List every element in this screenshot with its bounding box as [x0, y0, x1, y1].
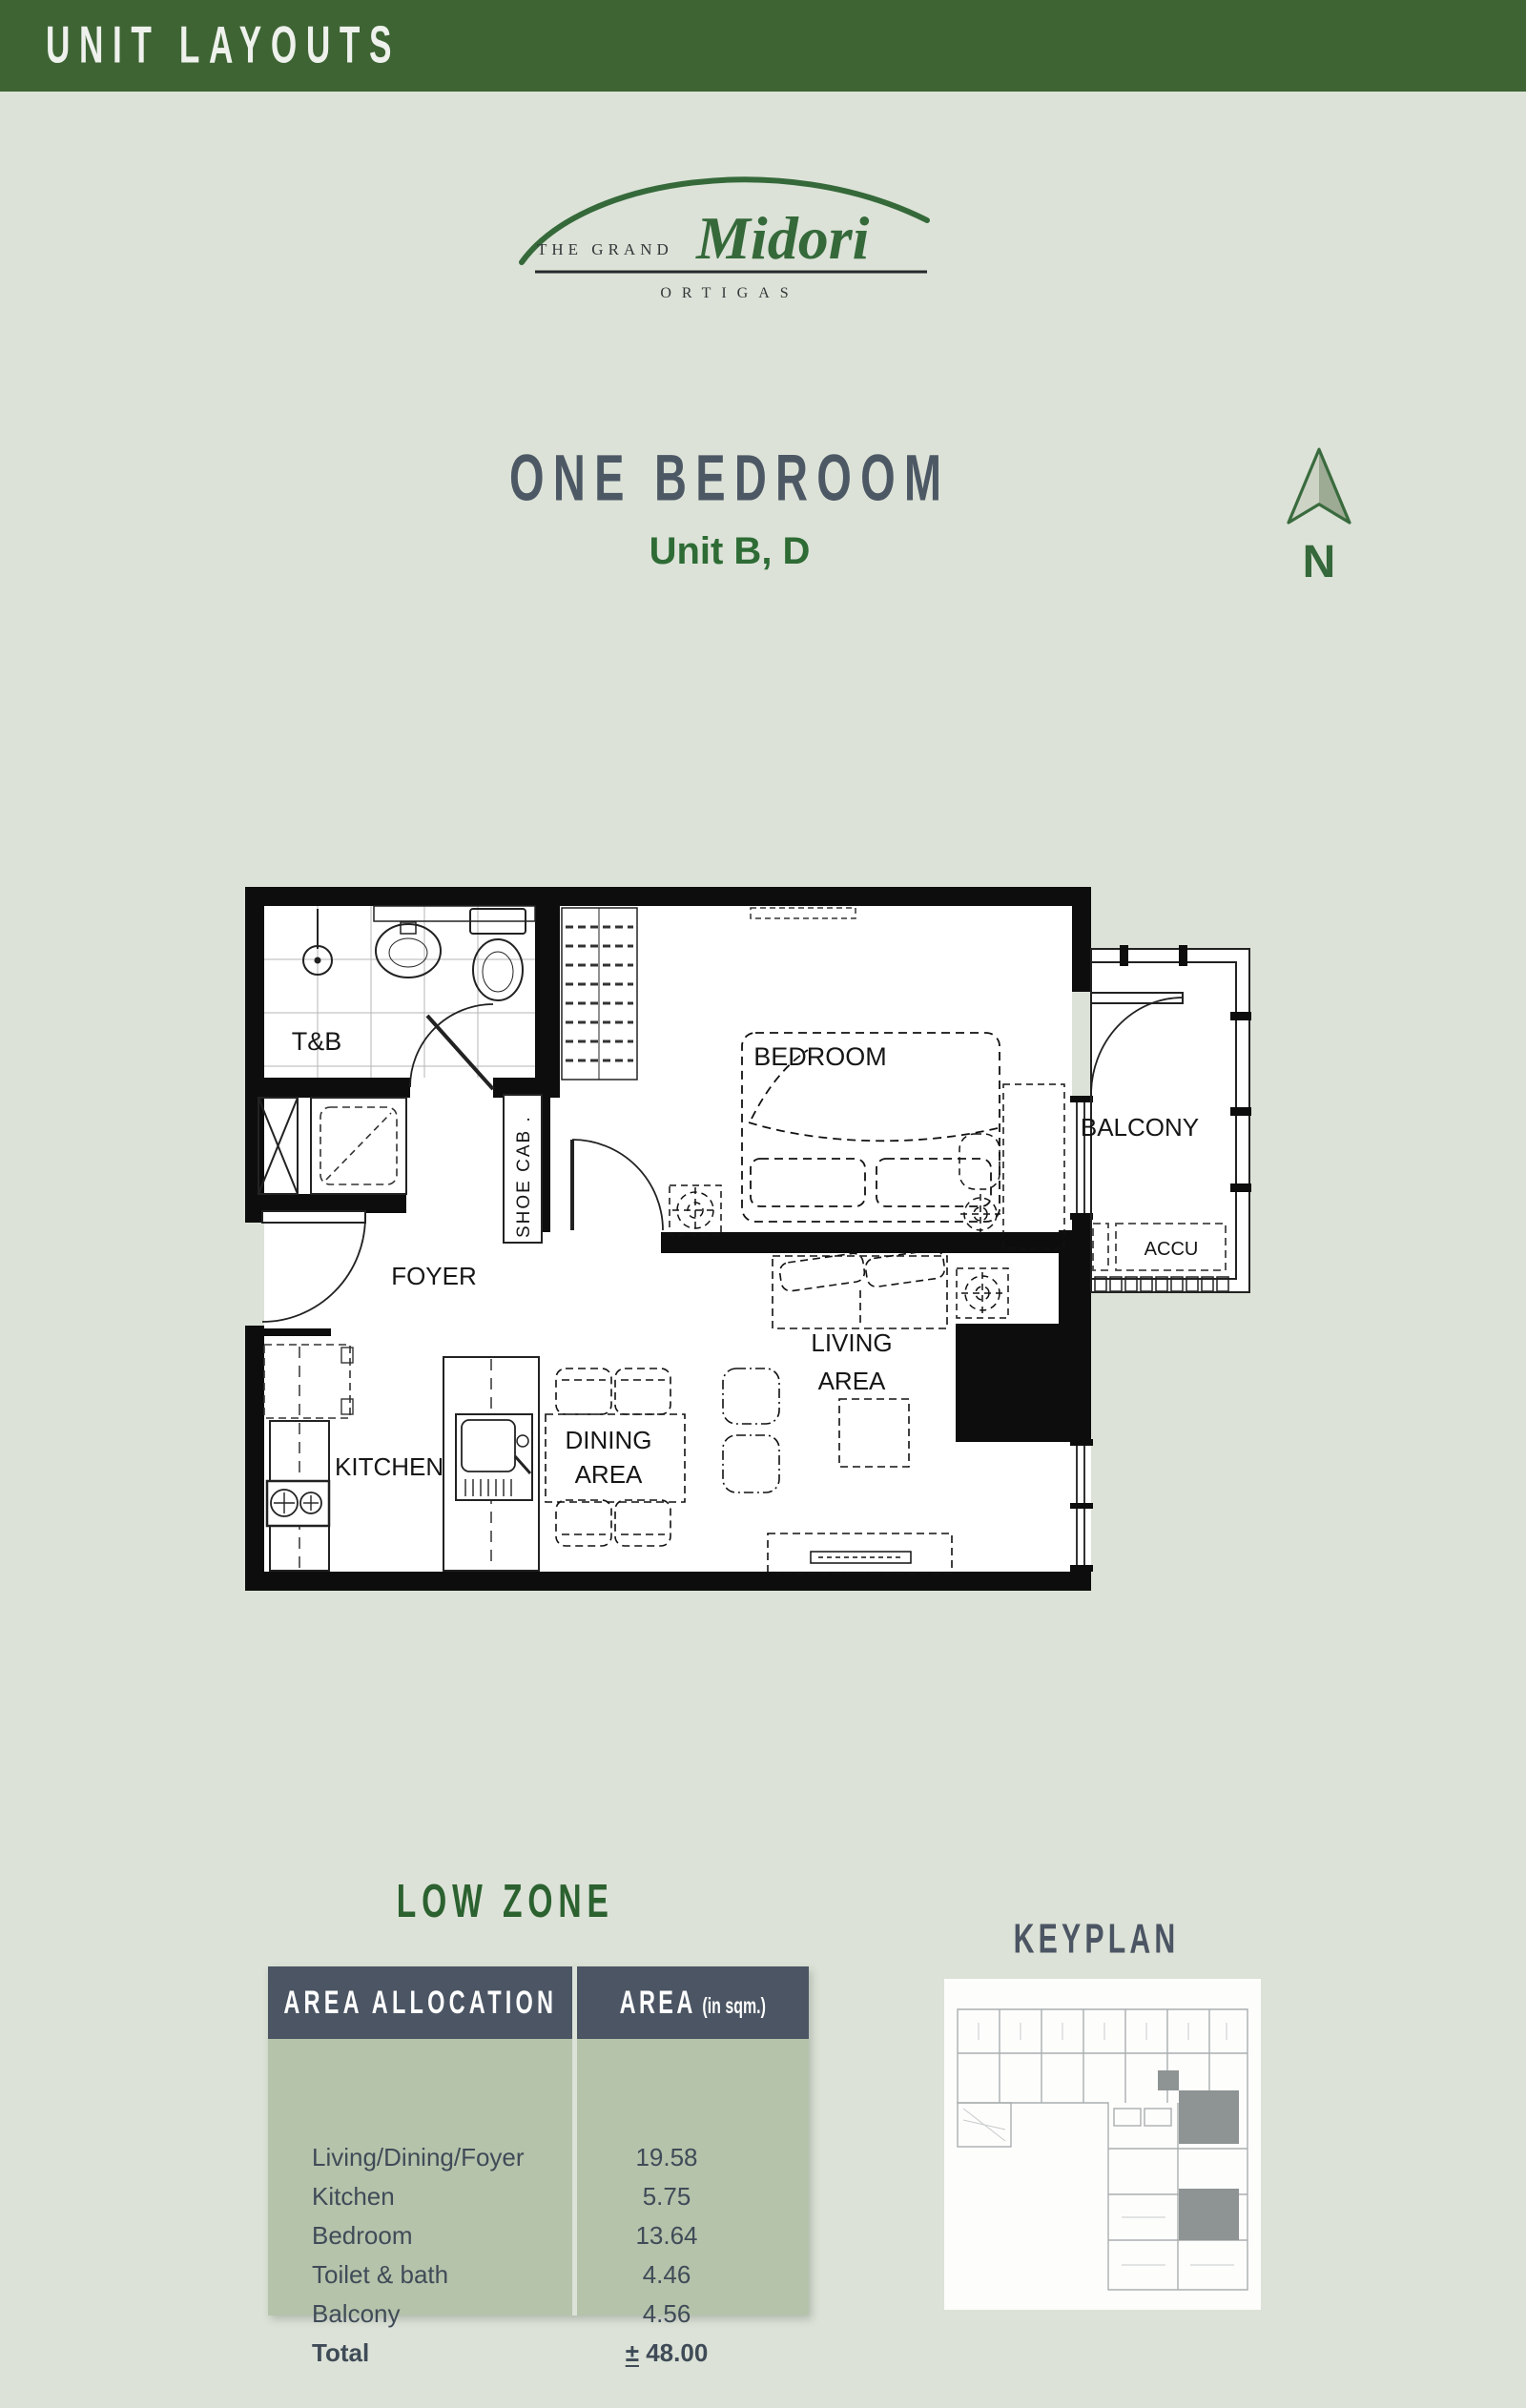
table-row-total: Total ± 48.00 — [268, 2334, 809, 2373]
label-accu: ACCU — [1144, 1239, 1199, 1260]
page-title: UNIT LAYOUTS — [46, 22, 489, 70]
label-foyer: FOYER — [391, 1262, 477, 1290]
page-header: UNIT LAYOUTS — [0, 0, 1526, 92]
table-row: Toilet & bath 4.46 — [268, 2255, 809, 2295]
logo-ortigas: ORTIGAS — [660, 285, 798, 301]
label-balcony: BALCONY — [1081, 1113, 1199, 1142]
floor-plan: T&B SHOE CAB . BEDROOM BALCONY ACCU FOYE… — [229, 873, 1268, 1607]
unit-type-title: ONE BEDROOM — [0, 446, 1459, 508]
label-living-1: LIVING — [811, 1328, 892, 1357]
north-arrow-icon — [1281, 439, 1357, 538]
label-dining-2: AREA — [575, 1460, 643, 1489]
table-row: Living/Dining/Foyer 19.58 — [268, 2138, 809, 2177]
keyplan-title: KEYPLAN — [968, 1919, 1226, 1959]
table-row: Bedroom 13.64 — [268, 2216, 809, 2255]
unit-layout-page: UNIT LAYOUTS THE GRAND Midori ORTIGAS ON… — [0, 0, 1526, 2408]
table-header-allocation: AREA ALLOCATION — [268, 1966, 572, 2039]
area-allocation-table: AREA ALLOCATION AREA(in sqm.) Living/Din… — [268, 1966, 809, 2315]
logo-script: Midori — [695, 204, 870, 272]
table-body: Living/Dining/Foyer 19.58 Kitchen 5.75 B… — [268, 2039, 809, 2315]
north-label: N — [1243, 536, 1395, 588]
unit-variant-subtitle: Unit B, D — [0, 530, 1459, 573]
label-tb: T&B — [292, 1027, 342, 1056]
label-living-2: AREA — [818, 1367, 886, 1395]
label-bedroom: BEDROOM — [753, 1042, 887, 1071]
logo-the-grand: THE GRAND — [537, 240, 673, 258]
brand-logo: THE GRAND Midori ORTIGAS — [501, 157, 949, 305]
stove — [267, 1481, 329, 1526]
living-window — [1070, 1439, 1093, 1572]
label-dining-1: DINING — [566, 1426, 652, 1454]
keyplan-map — [944, 1979, 1261, 2310]
zone-title: LOW ZONE — [229, 1881, 782, 1924]
label-shoe-cab: SHOE CAB . — [514, 1115, 534, 1238]
table-row: Balcony 4.56 — [268, 2295, 809, 2334]
table-header-area: AREA(in sqm.) — [577, 1966, 809, 2039]
kitchen-island-sink — [443, 1357, 539, 1571]
keyplan-background — [944, 1979, 1261, 2310]
label-kitchen: KITCHEN — [335, 1452, 443, 1481]
table-header: AREA ALLOCATION AREA(in sqm.) — [268, 1966, 809, 2039]
table-row: Kitchen 5.75 — [268, 2177, 809, 2216]
table-column-divider — [572, 1966, 577, 2315]
